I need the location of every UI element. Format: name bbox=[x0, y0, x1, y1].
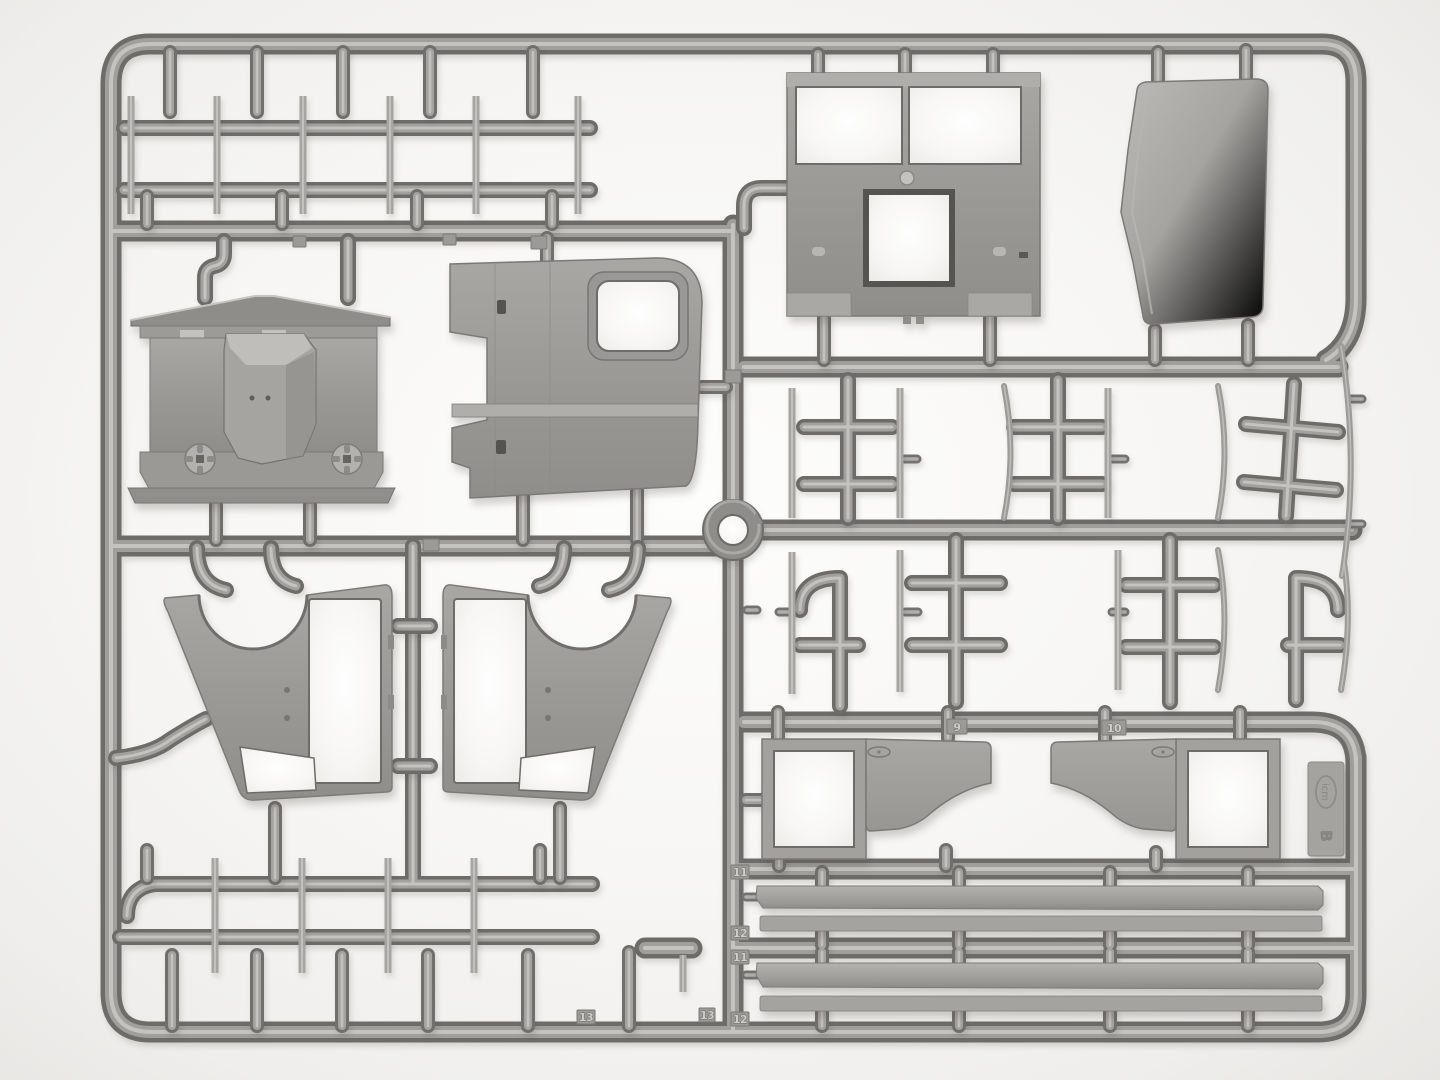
part-cab-front-panel bbox=[787, 73, 1040, 324]
svg-text:11: 11 bbox=[733, 951, 747, 964]
svg-text:12: 12 bbox=[733, 1013, 747, 1026]
part-cab-roof-panel bbox=[1121, 79, 1268, 324]
tab-door-left: 9 bbox=[947, 719, 967, 734]
gate-tab bbox=[423, 539, 439, 551]
firewall-rosette-left bbox=[185, 444, 215, 474]
gate-tab bbox=[443, 234, 456, 245]
sprue-letter: B bbox=[1317, 830, 1335, 841]
icm-sprue-tag: icm B bbox=[1308, 762, 1344, 856]
svg-text:13: 13 bbox=[579, 1011, 593, 1024]
tab-slats-left: 13 bbox=[577, 1010, 595, 1024]
part-injection-gate-ring bbox=[703, 500, 763, 560]
gate-tab bbox=[725, 370, 741, 383]
firewall-rosette-right bbox=[332, 444, 362, 474]
sprue-scene: icm B 9 10 11 12 11 12 13 13 bbox=[0, 0, 1440, 1080]
svg-text:13: 13 bbox=[700, 1009, 714, 1022]
tab-slats-right: 13 bbox=[699, 1008, 715, 1022]
part-cab-door-panel bbox=[450, 258, 702, 498]
tab-door-right: 10 bbox=[1102, 720, 1126, 735]
sprue-photo: icm B 9 10 11 12 11 12 13 13 bbox=[0, 0, 1440, 1080]
part-cab-firewall bbox=[128, 296, 395, 503]
svg-text:9: 9 bbox=[953, 721, 960, 734]
tab-board-1: 11 bbox=[731, 865, 749, 879]
svg-text:11: 11 bbox=[733, 866, 747, 879]
tab-board-3: 11 bbox=[731, 950, 749, 964]
icm-logo-text: icm bbox=[1319, 783, 1330, 801]
tab-board-4: 12 bbox=[731, 1012, 749, 1026]
gate-tab bbox=[531, 236, 547, 249]
svg-text:10: 10 bbox=[1107, 722, 1122, 735]
gate-tab bbox=[293, 236, 306, 247]
svg-text:12: 12 bbox=[733, 927, 747, 940]
tab-board-2: 12 bbox=[731, 926, 749, 940]
